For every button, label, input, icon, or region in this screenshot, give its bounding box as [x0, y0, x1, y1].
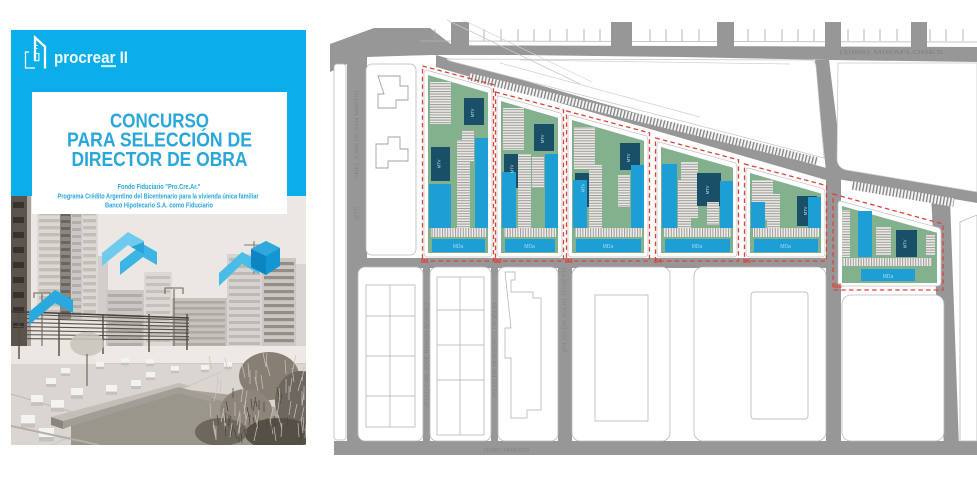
svg-text:MTV: MTV: [705, 185, 710, 194]
svg-text:B3: B3: [565, 259, 573, 265]
svg-text:procrear II: procrear II: [54, 48, 128, 67]
svg-text:MDa: MDa: [780, 244, 791, 250]
svg-text:MTV: MTV: [903, 239, 908, 248]
svg-text:(1092) YATASTO: (1092) YATASTO: [484, 448, 529, 454]
svg-text:B1: B1: [421, 259, 429, 265]
svg-text:MTV: MTV: [803, 206, 808, 215]
svg-text:PARA SELECCIÓN DE: PARA SELECCIÓN DE: [67, 128, 252, 152]
svg-text:MTV: MTV: [437, 159, 442, 168]
svg-text:(1086) MIRAFLORES: (1086) MIRAFLORES: [839, 50, 944, 56]
svg-text:MTV: MTV: [510, 164, 515, 173]
svg-text:(P123) DR NORBERTO TROGLIO: (P123) DR NORBERTO TROGLIO: [493, 303, 499, 398]
svg-text:(P125) DR JULIO TOSETTI: (P125) DR JULIO TOSETTI: [563, 268, 569, 353]
svg-text:MTV: MTV: [470, 108, 475, 117]
svg-text:MDa: MDa: [453, 244, 464, 250]
svg-text:B4: B4: [654, 259, 662, 265]
svg-text:Programa Crédito Argentino del: Programa Crédito Argentino del Bicentena…: [58, 193, 259, 200]
svg-text:(277): (277): [355, 207, 361, 219]
svg-text:MDa: MDa: [692, 244, 703, 250]
svg-text:Banco Hipotecario S.A. como Fi: Banco Hipotecario S.A. como Fiduciario: [105, 203, 213, 210]
svg-text:DIRECTOR DE OBRA: DIRECTOR DE OBRA: [72, 149, 248, 171]
svg-text:B5: B5: [743, 259, 751, 265]
svg-text:Fondo Fiduciario "Pro.Cre.Ar.": Fondo Fiduciario "Pro.Cre.Ar.": [118, 184, 201, 191]
svg-text:MDa: MDa: [603, 244, 614, 250]
svg-text:MDa: MDa: [524, 244, 535, 250]
svg-text:CNEL JUAN DE SAN MARTIN: CNEL JUAN DE SAN MARTIN: [355, 91, 361, 179]
svg-text:MTV: MTV: [540, 134, 545, 143]
svg-text:MTV: MTV: [581, 183, 586, 192]
svg-text:B6: B6: [834, 284, 842, 290]
svg-text:MDa: MDa: [883, 274, 894, 280]
svg-text:(P121) CJAL JOSE RAMON ALVAREZ: (P121) CJAL JOSE RAMON ALVAREZ: [425, 303, 431, 408]
svg-text:MTV: MTV: [626, 153, 631, 162]
svg-text:B2: B2: [494, 259, 502, 265]
